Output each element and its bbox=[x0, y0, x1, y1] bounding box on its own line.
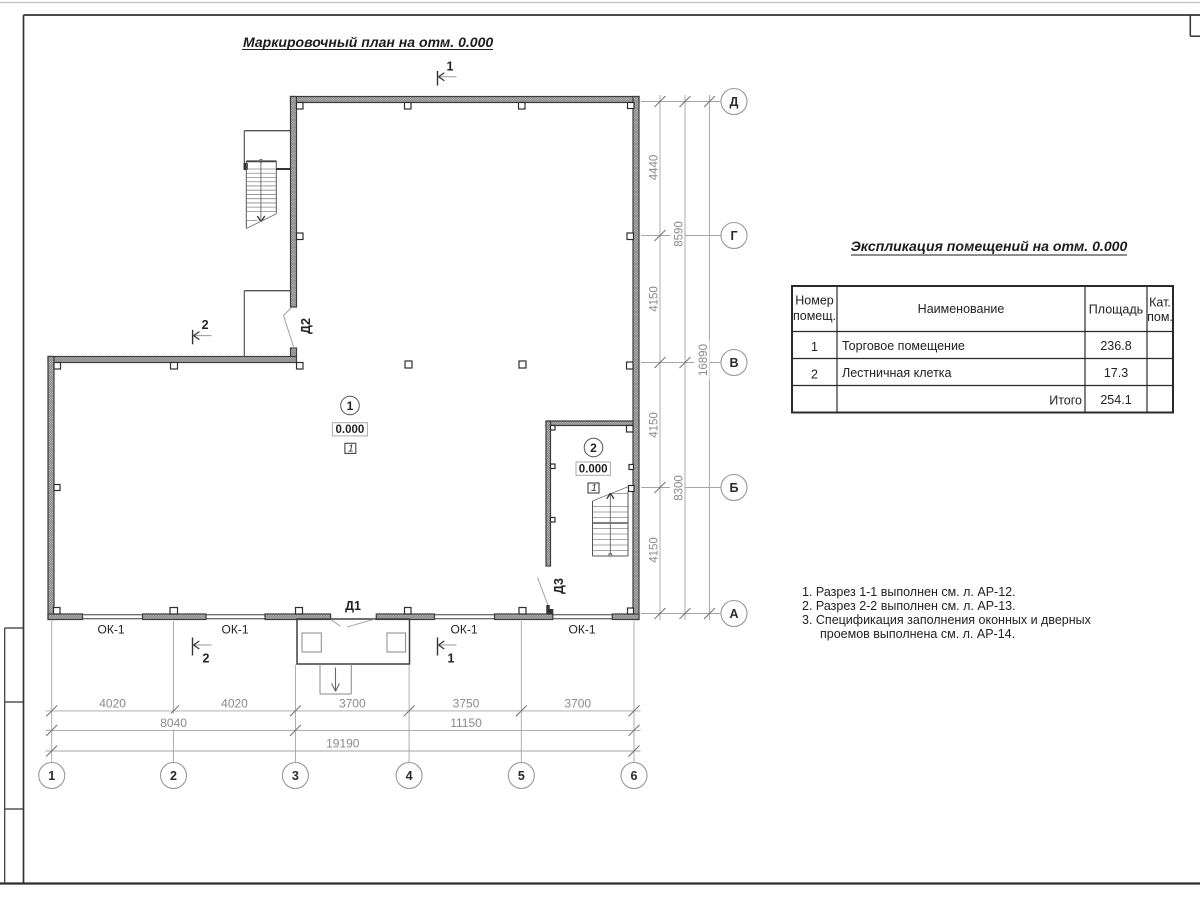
svg-text:1: 1 bbox=[448, 652, 455, 666]
svg-text:3: 3 bbox=[292, 769, 299, 783]
svg-text:19190: 19190 bbox=[326, 737, 360, 751]
svg-text:4440: 4440 bbox=[649, 155, 661, 181]
svg-text:1: 1 bbox=[447, 59, 454, 73]
svg-text:1: 1 bbox=[591, 482, 597, 494]
svg-text:17.3: 17.3 bbox=[1104, 366, 1128, 380]
svg-text:помещ.: помещ. bbox=[793, 309, 836, 323]
svg-text:0.000: 0.000 bbox=[336, 424, 365, 436]
svg-text:Г: Г bbox=[730, 229, 737, 243]
svg-text:16890: 16890 bbox=[698, 344, 710, 376]
svg-text:3700: 3700 bbox=[339, 697, 366, 711]
svg-text:ОК-1: ОК-1 bbox=[451, 623, 478, 637]
svg-text:Площадь: Площадь bbox=[1089, 303, 1143, 317]
svg-text:236.8: 236.8 bbox=[1100, 339, 1131, 353]
svg-text:Б: Б bbox=[730, 481, 739, 495]
svg-text:В: В bbox=[729, 356, 738, 370]
svg-text:5: 5 bbox=[518, 769, 525, 783]
svg-text:1: 1 bbox=[347, 399, 354, 413]
svg-text:проемов выполнена см. л. АР-14: проемов выполнена см. л. АР-14. bbox=[820, 627, 1015, 641]
svg-text:11150: 11150 bbox=[450, 716, 482, 730]
svg-text:8590: 8590 bbox=[674, 221, 686, 247]
svg-text:4150: 4150 bbox=[649, 412, 661, 438]
svg-text:4020: 4020 bbox=[221, 697, 248, 711]
svg-text:4150: 4150 bbox=[649, 286, 661, 312]
svg-text:ОК-1: ОК-1 bbox=[222, 623, 249, 637]
svg-text:1: 1 bbox=[48, 769, 55, 783]
svg-text:2: 2 bbox=[203, 652, 210, 666]
svg-text:4: 4 bbox=[406, 769, 413, 783]
svg-text:Д: Д bbox=[730, 95, 739, 109]
svg-text:Д2: Д2 bbox=[299, 318, 313, 334]
svg-text:2: 2 bbox=[202, 318, 209, 332]
svg-text:3750: 3750 bbox=[453, 697, 480, 711]
svg-text:Экспликация помещений на отм.: Экспликация помещений на отм. 0.000 bbox=[851, 238, 1128, 254]
svg-text:Маркировочный план на отм. 0.0: Маркировочный план на отм. 0.000 bbox=[243, 34, 493, 50]
svg-text:Наименование: Наименование bbox=[918, 302, 1005, 316]
svg-text:4020: 4020 bbox=[99, 697, 126, 711]
svg-text:Лестничная клетка: Лестничная клетка bbox=[842, 366, 952, 380]
svg-text:Итого: Итого bbox=[1049, 394, 1082, 408]
svg-text:Номер: Номер bbox=[795, 294, 834, 308]
svg-text:6: 6 bbox=[631, 769, 638, 783]
svg-text:0.000: 0.000 bbox=[579, 463, 608, 475]
svg-text:2. Разрез 2-2 выполнен см. л.: 2. Разрез 2-2 выполнен см. л. АР-13. bbox=[802, 599, 1016, 613]
svg-text:ОК-1: ОК-1 bbox=[569, 623, 596, 637]
svg-text:254.1: 254.1 bbox=[1100, 393, 1131, 407]
svg-text:1: 1 bbox=[348, 443, 354, 455]
svg-text:1. Разрез 1-1 выполнен см. л.: 1. Разрез 1-1 выполнен см. л. АР-12. bbox=[802, 585, 1016, 599]
svg-text:3700: 3700 bbox=[564, 697, 591, 711]
svg-text:2: 2 bbox=[590, 441, 597, 455]
svg-text:8300: 8300 bbox=[674, 475, 686, 501]
svg-text:Кат.: Кат. bbox=[1149, 296, 1171, 310]
svg-text:ОК-1: ОК-1 bbox=[98, 623, 125, 637]
svg-text:Торговое помещение: Торговое помещение bbox=[842, 339, 965, 353]
svg-text:2: 2 bbox=[811, 368, 818, 382]
svg-text:Д3: Д3 bbox=[552, 578, 566, 594]
svg-text:8040: 8040 bbox=[160, 716, 187, 730]
svg-text:2: 2 bbox=[170, 769, 177, 783]
svg-text:Д1: Д1 bbox=[345, 599, 361, 613]
svg-text:пом.: пом. bbox=[1147, 310, 1173, 324]
svg-text:1: 1 bbox=[811, 340, 818, 354]
svg-text:4150: 4150 bbox=[649, 537, 661, 563]
svg-text:А: А bbox=[729, 607, 738, 621]
svg-text:3. Спецификация заполнения око: 3. Спецификация заполнения оконных и две… bbox=[802, 613, 1092, 627]
